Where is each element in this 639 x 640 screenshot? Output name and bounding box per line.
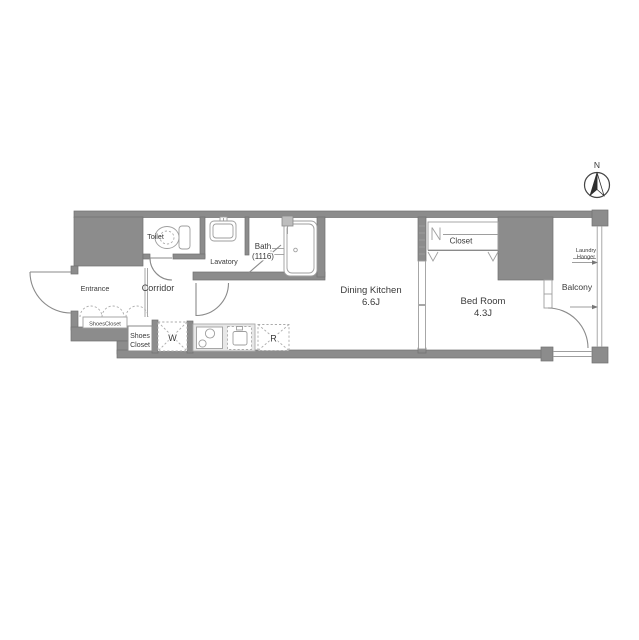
closet-door-mark-left: [428, 252, 438, 261]
shoe-cabinet-door-arcs: [80, 306, 148, 317]
shoes-closet-cabinet-label: ShoesCloset: [89, 322, 121, 328]
shoes-closet-label-line2: Closet: [130, 342, 150, 349]
balcony-door-arc: [548, 308, 588, 348]
north-label: N: [594, 160, 600, 170]
bath-size-label: (1116): [252, 252, 274, 261]
dining-kitchen-label: Dining Kitchen: [340, 285, 401, 296]
shower-unit: [282, 216, 293, 226]
toilet-bottom-wall: [173, 254, 205, 259]
toilet-bottom-wall-stub: [143, 254, 150, 259]
laundry-hanger-label-line2: Hanger: [577, 255, 595, 261]
lavatory-bath-divider-wall: [245, 217, 249, 255]
stove-burner-large: [205, 329, 214, 338]
refrigerator-label: R: [270, 334, 277, 344]
balcony-corner-block-top: [592, 210, 608, 226]
laundry-hanger-label-line1: Laundry: [576, 248, 596, 254]
pillar-block: [498, 217, 553, 280]
toilet-tank: [179, 226, 190, 249]
balcony-corner-block-bottom: [592, 347, 608, 363]
toilet-lavatory-wall: [200, 217, 205, 258]
nw-wall-block: [74, 217, 143, 266]
closet-hanger-icon: [432, 228, 440, 241]
toilet-door-arc: [150, 258, 172, 280]
shoes-closet-label-line1: Shoes: [130, 333, 150, 340]
floor-plan-page: N Toilet Lavatory Bath (1116) Entrance C…: [0, 0, 639, 640]
closet-door-mark-right: [488, 252, 498, 261]
washing-machine-label: W: [168, 333, 177, 343]
shoes-closet-divider-wall: [152, 320, 158, 353]
left-wall-upper: [71, 266, 78, 274]
sliding-door-panel-1: [419, 261, 426, 305]
sliding-door-panel-2: [419, 306, 426, 350]
floor-plan: N Toilet Lavatory Bath (1116) Entrance C…: [0, 0, 639, 640]
corridor-door-arc: [196, 283, 229, 316]
entrance-step-wall: [71, 327, 128, 341]
bathtub: [284, 221, 317, 276]
closet-label: Closet: [450, 237, 473, 246]
toilet-label: Toilet: [147, 232, 164, 241]
balcony-label: Balcony: [562, 282, 593, 292]
washer-kitchen-divider-wall: [187, 321, 193, 353]
lavatory-label: Lavatory: [210, 257, 238, 266]
top-wall: [74, 211, 593, 218]
lavatory-room: [210, 217, 236, 241]
compass-icon: [585, 173, 610, 198]
balcony-left-block: [541, 347, 553, 361]
bed-room-label: Bed Room: [461, 296, 506, 307]
corridor-label: Corridor: [142, 283, 175, 293]
dining-kitchen-size-label: 6.6J: [362, 297, 380, 308]
bath-label: Bath: [255, 242, 271, 251]
bed-room-size-label: 4.3J: [474, 308, 492, 319]
entrance-door-arc: [30, 272, 71, 313]
kitchen-sink: [233, 332, 247, 346]
entrance-label: Entrance: [81, 284, 110, 293]
stove-burner-small: [199, 340, 206, 347]
bath-right-wall: [317, 217, 325, 277]
